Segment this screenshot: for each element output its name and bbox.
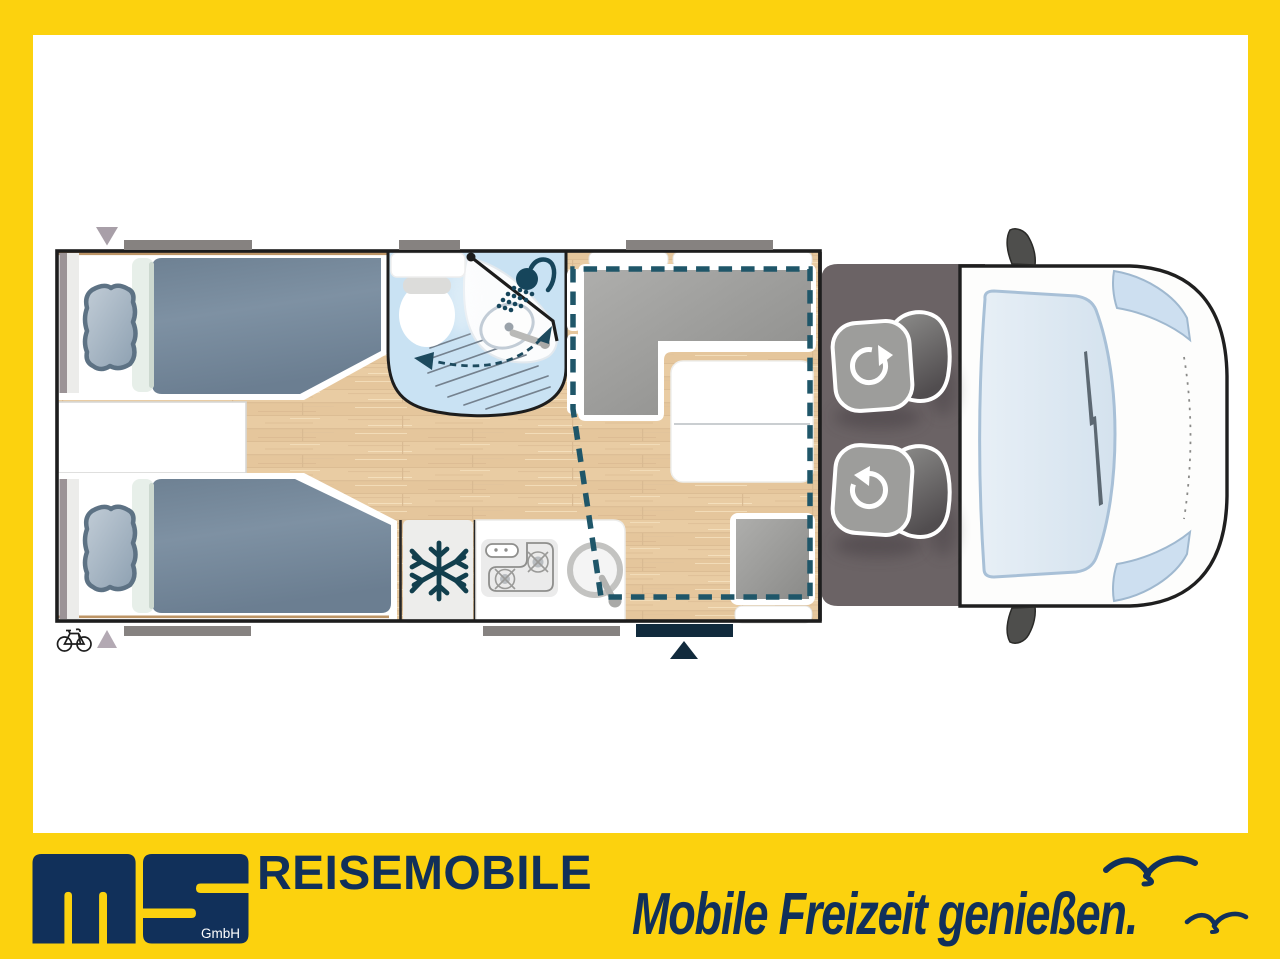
svg-text:GmbH: GmbH xyxy=(201,926,240,941)
svg-text:Mobile Freizeit genießen.: Mobile Freizeit genießen. xyxy=(632,881,1137,948)
svg-text:REISEMOBILE: REISEMOBILE xyxy=(257,847,592,900)
